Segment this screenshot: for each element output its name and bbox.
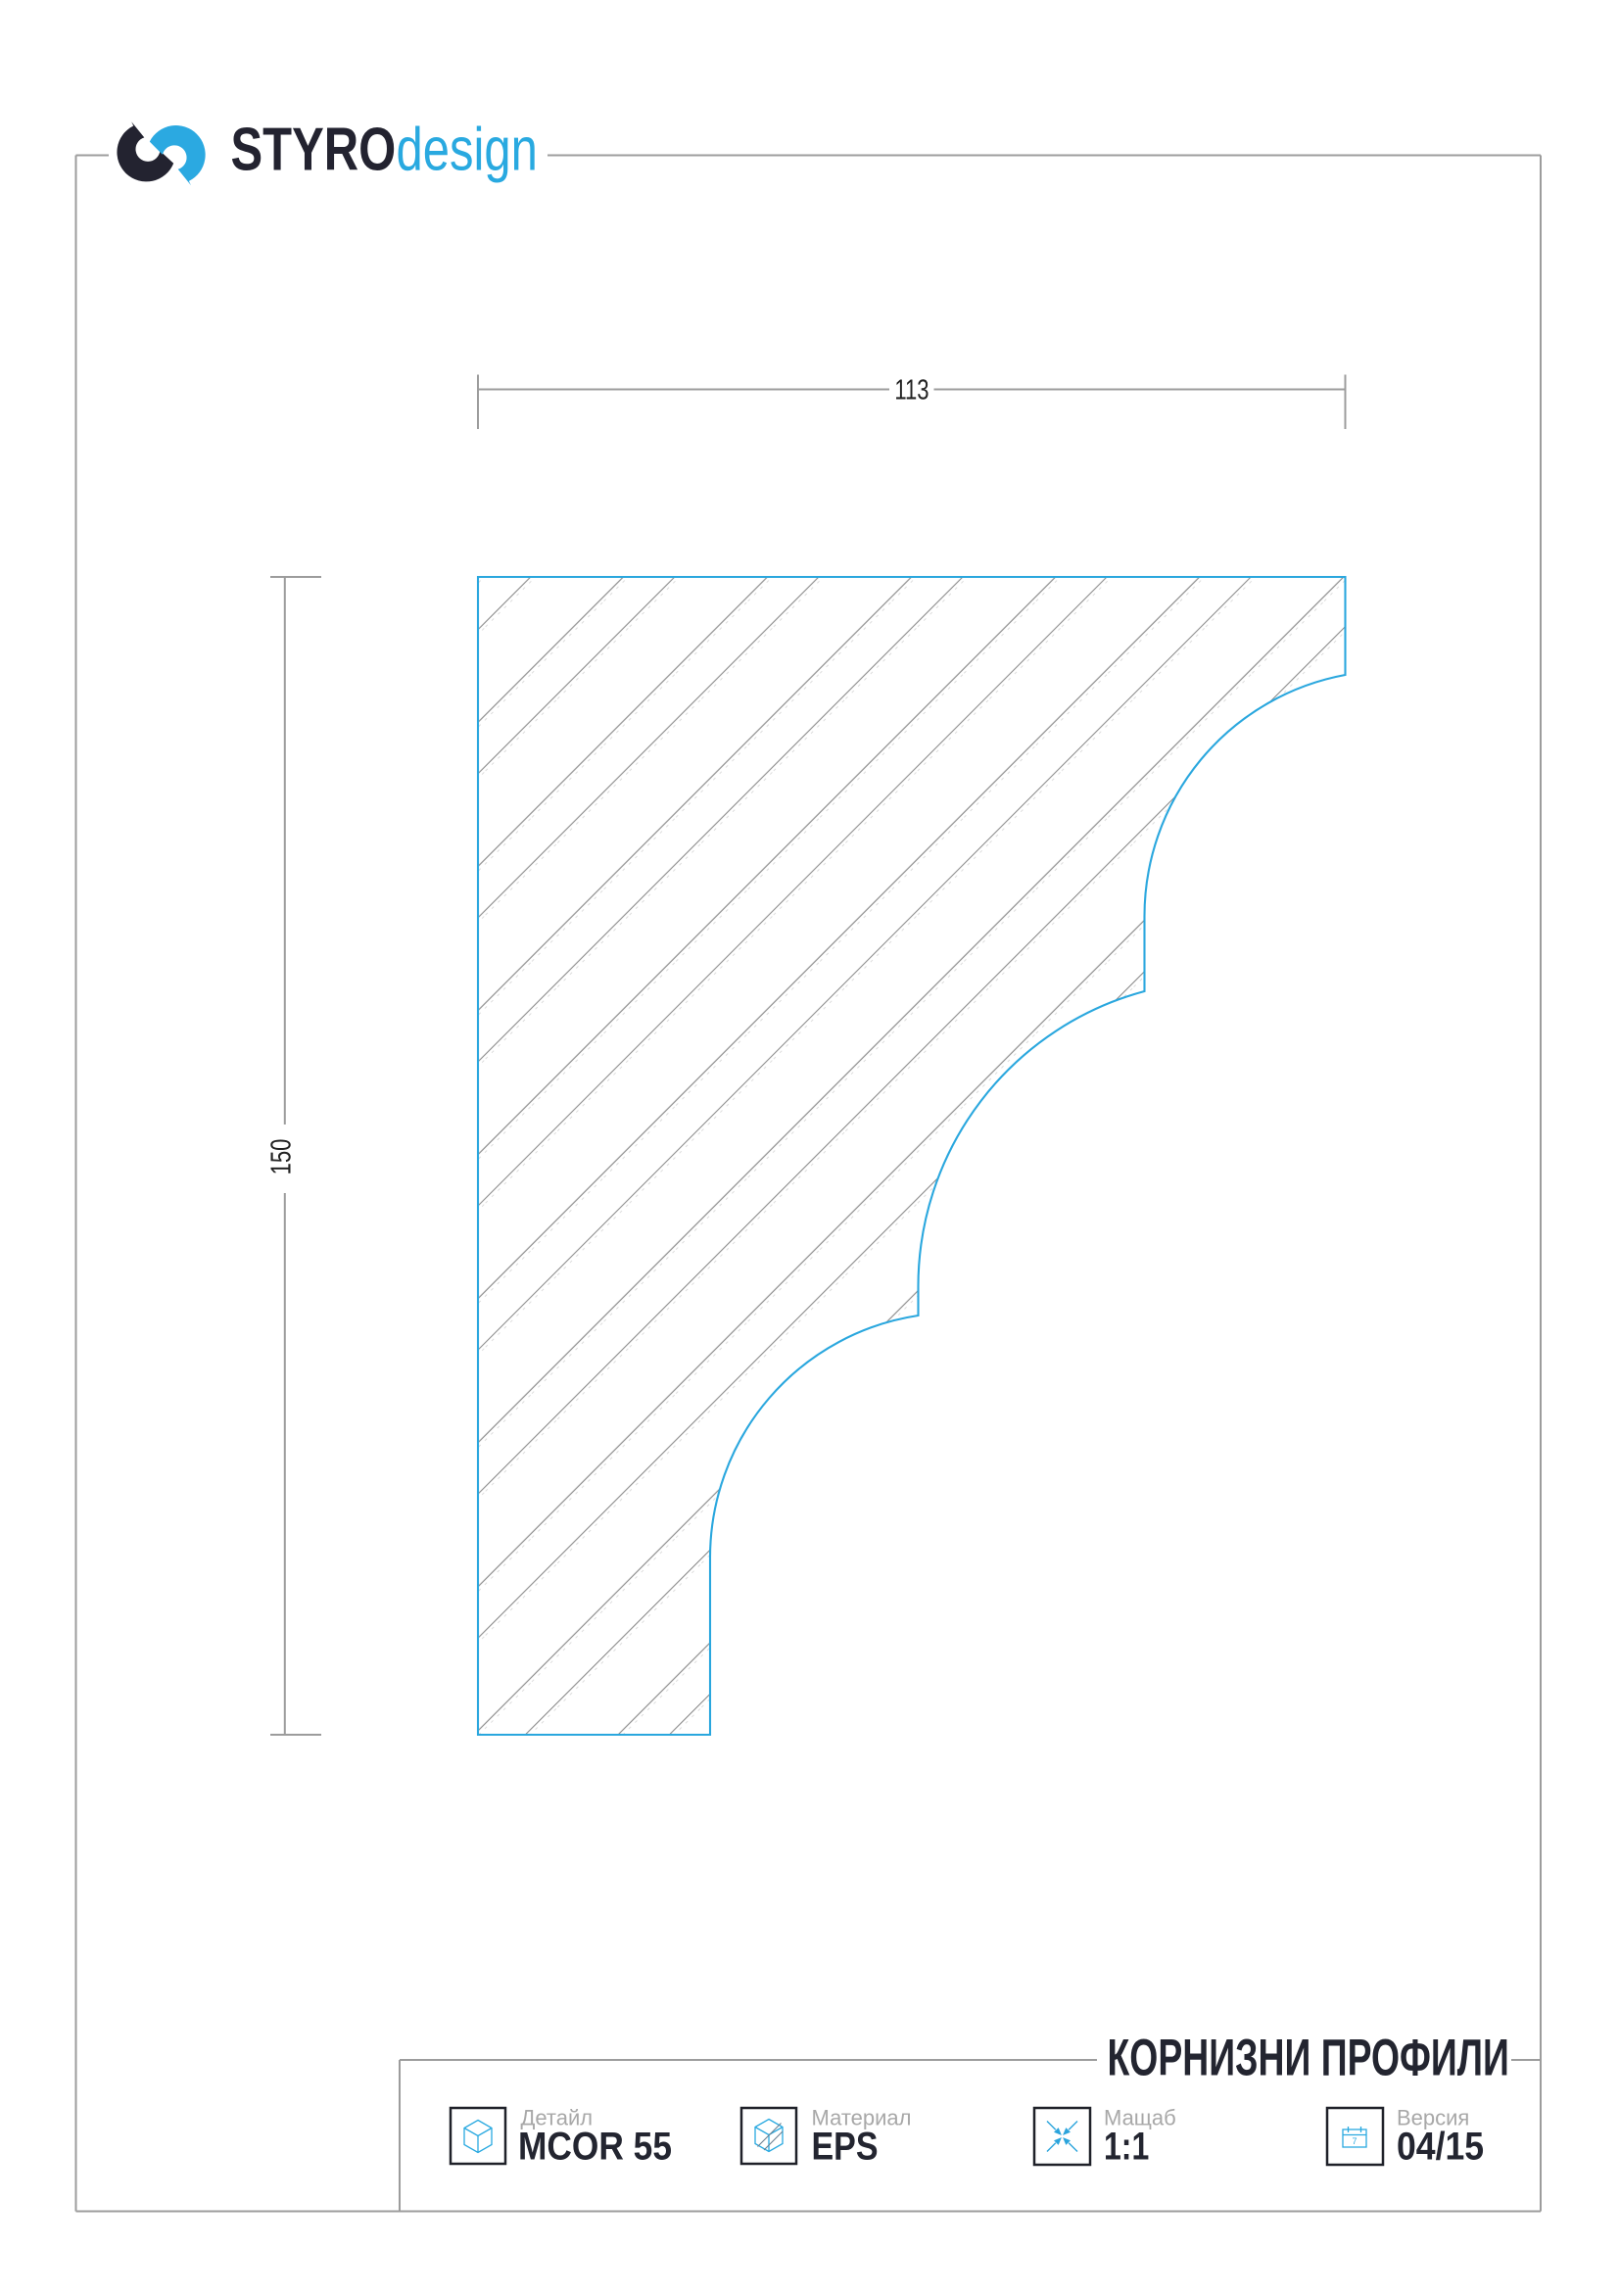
svg-text:КОРНИЗНИ ПРОФИЛИ: КОРНИЗНИ ПРОФИЛИ	[1108, 2028, 1509, 2086]
svg-text:1:1: 1:1	[1104, 2124, 1149, 2168]
svg-text:150: 150	[266, 1139, 298, 1175]
svg-text:EPS: EPS	[812, 2124, 879, 2168]
svg-text:113: 113	[894, 375, 929, 407]
svg-text:7: 7	[1352, 2136, 1357, 2146]
svg-text:MCOR 55: MCOR 55	[518, 2124, 672, 2168]
svg-text:STYRO: STYRO	[231, 115, 397, 183]
svg-text:design: design	[397, 115, 538, 183]
svg-text:04/15: 04/15	[1397, 2126, 1484, 2169]
